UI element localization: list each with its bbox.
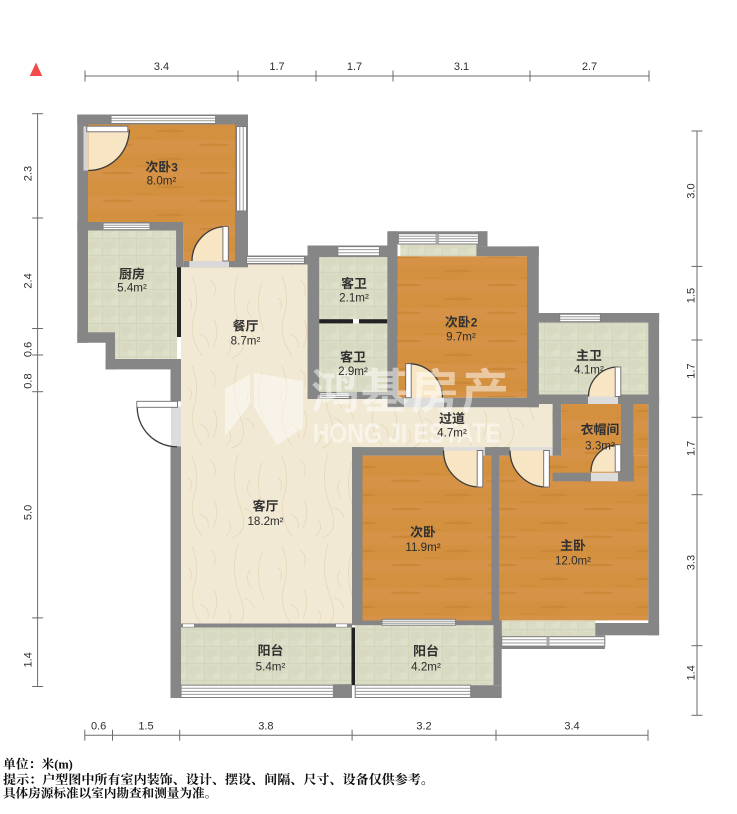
- svg-text:5.4m²: 5.4m²: [117, 282, 147, 295]
- svg-text:8.0m²: 8.0m²: [147, 175, 177, 188]
- svg-text:2.3: 2.3: [23, 166, 35, 181]
- svg-text:1.4: 1.4: [686, 665, 698, 680]
- svg-text:1.5: 1.5: [138, 721, 153, 733]
- svg-text:3.3: 3.3: [686, 555, 698, 570]
- svg-text:2: 2: [471, 316, 478, 330]
- svg-text:11.9m²: 11.9m²: [405, 541, 440, 554]
- svg-text:HONG JI ESTATE: HONG JI ESTATE: [313, 418, 501, 449]
- svg-text:5.4m²: 5.4m²: [256, 661, 286, 674]
- svg-text:0.6: 0.6: [23, 342, 35, 357]
- svg-text:1.7: 1.7: [686, 441, 698, 456]
- svg-text:2.1m²: 2.1m²: [339, 292, 369, 305]
- svg-text:3: 3: [171, 161, 178, 175]
- svg-text:4.7m²: 4.7m²: [437, 427, 467, 440]
- svg-text:4.2m²: 4.2m²: [411, 661, 441, 674]
- svg-text:1.4: 1.4: [23, 652, 35, 667]
- svg-text:2.9m²: 2.9m²: [338, 365, 368, 378]
- svg-text:4.1m²: 4.1m²: [574, 364, 604, 377]
- svg-text:(m): (m): [54, 758, 73, 772]
- svg-text:3.0: 3.0: [686, 183, 698, 198]
- svg-text:3.3m²: 3.3m²: [585, 440, 615, 453]
- svg-text:1.5: 1.5: [686, 288, 698, 303]
- svg-text:18.2m²: 18.2m²: [247, 515, 283, 528]
- svg-text:0.8: 0.8: [23, 373, 35, 388]
- svg-text:3.8: 3.8: [258, 721, 273, 733]
- svg-text:3.2: 3.2: [416, 721, 431, 733]
- svg-text:12.0m²: 12.0m²: [555, 555, 591, 568]
- svg-text:2.7: 2.7: [582, 61, 597, 73]
- svg-text:3.4: 3.4: [564, 721, 579, 733]
- svg-text:3.4: 3.4: [154, 61, 169, 73]
- svg-text:1.7: 1.7: [347, 61, 362, 73]
- svg-text:8.7m²: 8.7m²: [231, 335, 261, 348]
- svg-text:1.7: 1.7: [269, 61, 284, 73]
- svg-text:2.4: 2.4: [23, 273, 35, 288]
- svg-text:1.7: 1.7: [686, 363, 698, 378]
- svg-text:5.0: 5.0: [23, 505, 35, 520]
- svg-text:3.1: 3.1: [454, 61, 469, 73]
- svg-text:9.7m²: 9.7m²: [446, 331, 476, 344]
- svg-text:0.6: 0.6: [91, 721, 106, 733]
